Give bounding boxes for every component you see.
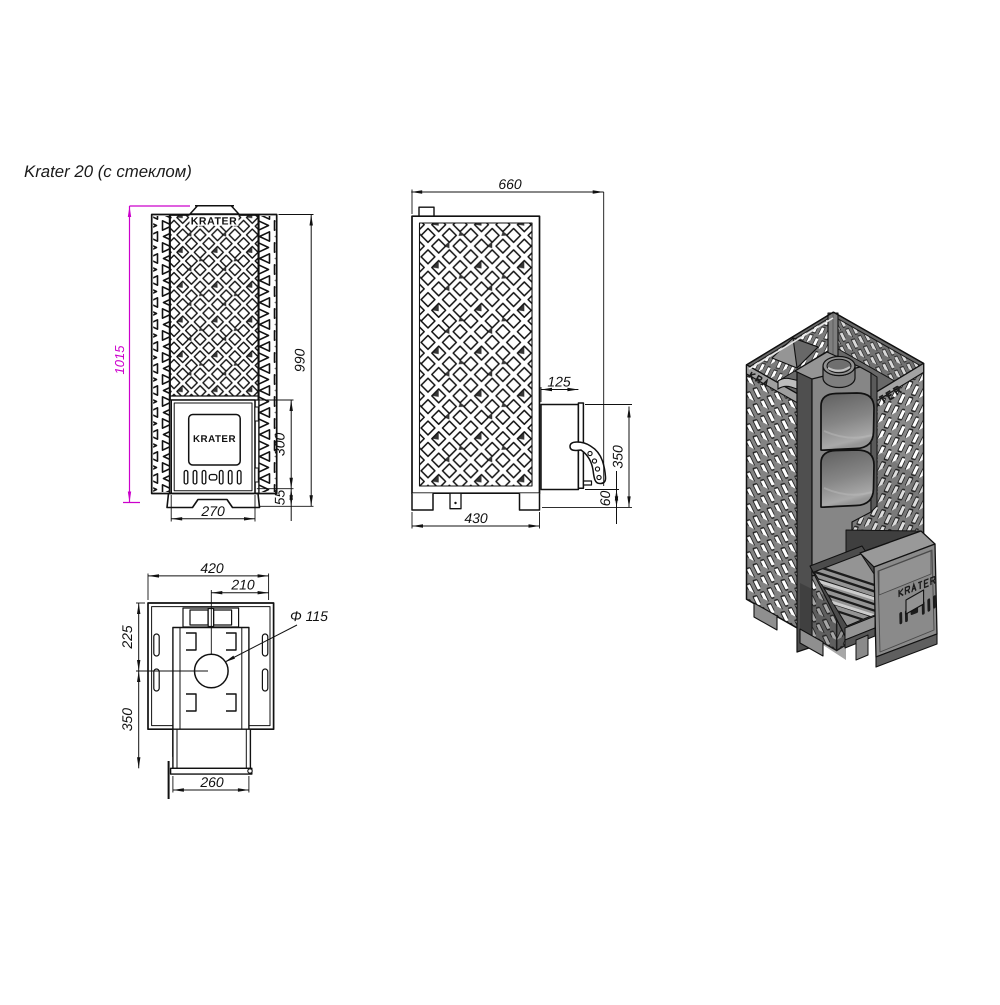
svg-text:350: 350: [119, 708, 135, 732]
svg-text:1015: 1015: [112, 345, 127, 375]
svg-text:260: 260: [199, 774, 224, 790]
svg-text:KRATER: KRATER: [191, 216, 238, 228]
svg-text:430: 430: [464, 510, 488, 526]
svg-text:60: 60: [597, 491, 613, 507]
svg-text:225: 225: [119, 625, 135, 650]
svg-text:Φ 115: Φ 115: [290, 608, 328, 624]
svg-text:990: 990: [292, 349, 308, 373]
svg-text:270: 270: [200, 503, 225, 519]
svg-text:420: 420: [200, 560, 224, 576]
svg-text:660: 660: [498, 176, 522, 192]
svg-text:Krater 20 (с стеклом): Krater 20 (с стеклом): [24, 162, 192, 181]
svg-text:55: 55: [272, 490, 288, 506]
svg-text:350: 350: [610, 445, 626, 469]
svg-text:125: 125: [547, 374, 571, 390]
svg-text:210: 210: [230, 577, 255, 593]
svg-text:300: 300: [272, 433, 288, 457]
svg-text:KRATER: KRATER: [193, 434, 236, 445]
